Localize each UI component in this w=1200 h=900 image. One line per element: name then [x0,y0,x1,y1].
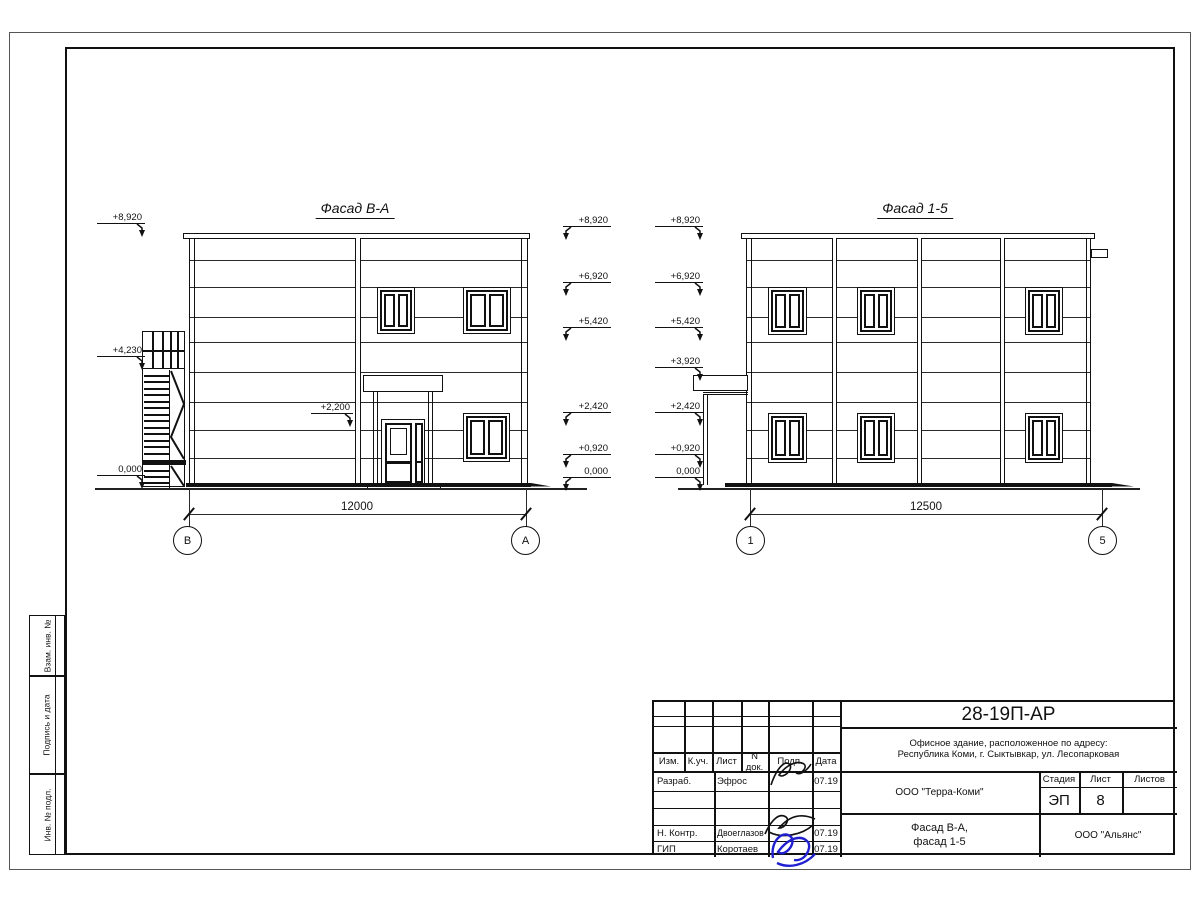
signature-korotaev [768,824,822,868]
dimension-line [750,514,1103,515]
door-rail [387,461,410,464]
elevation-mark: +2,200 [311,402,353,414]
stamp-divider [55,616,56,675]
tb-header-izm: Изм. [654,752,684,771]
pilaster [917,238,922,487]
entrance-door [381,419,425,487]
ground-line [95,488,587,490]
window [857,287,895,335]
elevation-mark: +6,920 [563,271,611,283]
stamp-divider [55,677,56,773]
porch-fascia [703,392,748,395]
window [463,287,511,334]
tb-role: Н. Контр. [654,825,717,841]
pilaster-line [751,238,752,487]
pilaster [832,238,837,487]
elevation-mark: +8,920 [563,215,611,227]
tb-role: Разраб. [654,771,717,791]
pilaster [355,238,361,487]
elevation-mark: +2,420 [655,401,703,413]
window [768,413,807,463]
drawing-title: Фасад В-А, фасад 1-5 [840,813,1039,857]
window [377,287,415,334]
stair-bracing [143,332,186,488]
drawing-sheet: Взам. инв. № Подпись и дата Инв. № подл.… [0,0,1200,900]
elevation-mark: +5,420 [563,316,611,328]
sheets-label: Листов [1122,771,1177,787]
stamp-vzam-inv: Взам. инв. № [29,615,65,676]
pilaster-line [1086,238,1087,487]
canopy-post [428,392,433,485]
facade-ba-title: Фасад В-А [316,200,395,219]
axis-line [750,489,751,527]
window [1025,287,1063,335]
elevation-mark: +4,230 [97,345,145,357]
base-taper [1112,483,1134,487]
elevation-mark: 0,000 [655,466,703,478]
elevation-mark: +0,920 [655,443,703,455]
elevation-mark: +6,920 [655,271,703,283]
tb-role: ГИП [654,841,717,857]
door-leaf [385,423,412,483]
elevation-mark: 0,000 [97,464,145,476]
entrance-canopy [363,375,443,392]
scupper [1091,249,1108,258]
axis-circle-1: 1 [736,526,765,555]
tb-name: Эфрос [714,771,771,791]
axis-line [526,489,527,527]
stamp-podpis-data: Подпись и дата [29,676,65,774]
elevation-mark: +2,420 [563,401,611,413]
elevation-mark: +8,920 [97,212,145,224]
window [463,413,510,462]
dimension-label: 12500 [907,501,945,513]
stage-value: ЭП [1039,787,1079,813]
axis-line [1102,489,1103,527]
tb-date: 07.19 [812,771,840,791]
porch-post [703,395,708,485]
axis-line [189,489,190,527]
door-glazing [390,428,407,455]
stamp-label: Взам. инв. № [42,619,52,672]
axis-circle-a: А [511,526,540,555]
title-block: Изм. К.уч. Лист N док. Подп. Дата Разраб… [652,700,1175,855]
signature-efros [768,755,814,793]
base-taper [531,483,551,487]
stage-label: Стадия [1039,771,1079,787]
doc-number: 28-19П-АР [840,702,1177,727]
stamp-inv-podl: Инв. № подл. [29,774,65,855]
pilaster-line [194,238,195,487]
dimension-label: 12000 [338,501,376,513]
dimension-line [189,514,527,515]
company-name: ООО "Терра-Коми" [840,771,1039,813]
pilaster [1000,238,1005,487]
elevation-mark: +8,920 [655,215,703,227]
sheet-label: Лист [1079,771,1122,787]
axis-circle-5: 5 [1088,526,1117,555]
elevation-mark: 0,000 [563,466,611,478]
tb-name: Коротаев [714,841,771,857]
window [1025,413,1063,463]
base-band [186,483,531,487]
stair-tower [142,331,185,487]
tb-header-list: Лист [712,752,741,771]
pilaster-line [521,238,522,487]
axis-circle-b: В [173,526,202,555]
window [857,413,895,463]
window [768,287,807,335]
stamp-label: Инв. № подл. [42,788,52,841]
stamp-divider [55,775,56,854]
elevation-mark: +3,920 [655,356,703,368]
tb-header-data: Дата [812,752,840,771]
tb-header-kuch: К.уч. [684,752,712,771]
canopy-post [373,392,378,485]
tb-header-ndok: N док. [741,752,768,771]
sheet-number: 8 [1079,787,1122,813]
elevation-mark: +5,420 [655,316,703,328]
base-band [725,483,1112,487]
door-sidelight [415,423,423,483]
project-address: Офисное здание, расположенное по адресу:… [840,727,1177,771]
stamp-label: Подпись и дата [42,694,52,755]
facade-15-title: Фасад 1-5 [877,200,953,219]
contractor-name: ООО "Альянс" [1039,813,1177,857]
elevation-mark: +0,920 [563,443,611,455]
ground-line [678,488,1140,490]
